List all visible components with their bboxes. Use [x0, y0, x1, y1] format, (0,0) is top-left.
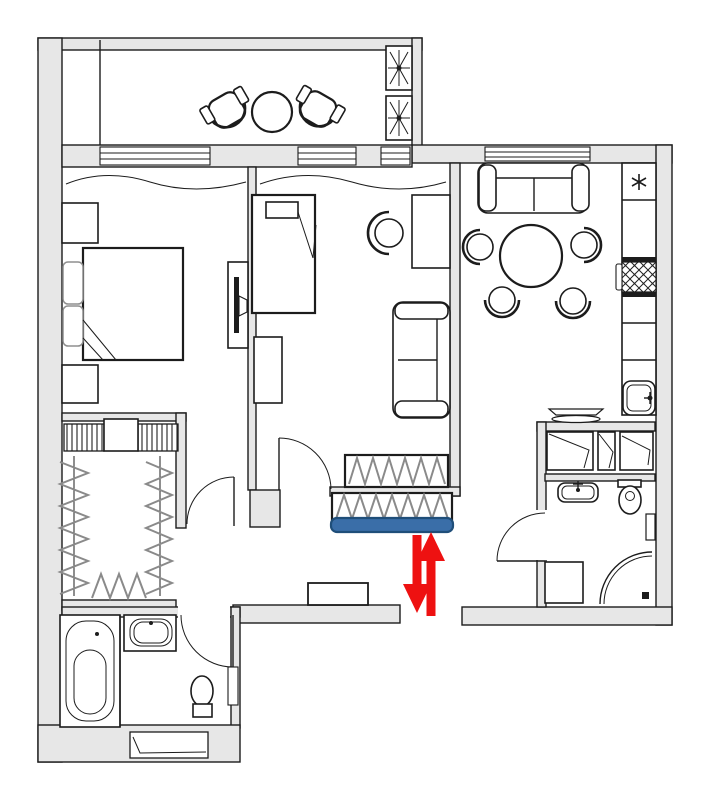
nightstand-icon: [62, 365, 98, 403]
cabinet-icon: [254, 337, 282, 403]
wall-top: [38, 38, 422, 50]
wall-block-hall: [250, 490, 280, 527]
floor-plan-page: [0, 0, 701, 800]
bathtub-icon: [60, 615, 120, 727]
window-bedroom-2: [298, 147, 356, 165]
nightstand-icon: [62, 203, 98, 243]
room-bedroom-2: [252, 175, 450, 487]
chair-icon: [556, 288, 590, 318]
hanging-rail-icon: [60, 456, 88, 596]
curtain-icon: [260, 175, 446, 189]
armchair-icon: [199, 85, 257, 137]
wall-right: [656, 145, 672, 625]
washing-machine-icon: [545, 562, 583, 603]
window-kitchen: [485, 147, 590, 161]
chair-icon: [485, 287, 519, 317]
door-bathroom-left: [181, 615, 233, 667]
toilet-icon: [191, 676, 213, 717]
room-walk-in-closet: [60, 419, 178, 598]
shelf-unit-icon: [64, 424, 104, 451]
armchair-icon: [289, 84, 347, 136]
single-bed-icon: [252, 195, 316, 313]
wall-bedroom2-kitchen: [450, 163, 460, 496]
duct-box: [228, 667, 238, 705]
shelf-unit-icon: [138, 424, 178, 451]
cabinet-icon: [547, 432, 593, 470]
round-table-icon: [252, 92, 292, 132]
hanging-rail-icon: [92, 574, 146, 598]
room-bedroom-1: [62, 175, 248, 403]
kitchen-counter: [616, 163, 656, 415]
wall-left: [38, 38, 62, 762]
stove-icon: [616, 257, 656, 297]
wall-balcony-right: [412, 38, 422, 147]
wardrobe-hangers-icon: [345, 455, 448, 487]
desk-icon: [412, 195, 450, 268]
kitchen-sink-icon: [623, 381, 655, 415]
wall-shelf-icon: [549, 409, 603, 423]
plant-icon: [386, 96, 412, 140]
wall-bottom-right: [462, 607, 672, 625]
window-bedroom-2b: [381, 147, 410, 165]
wall-tv-icon: [228, 262, 248, 348]
highlight-bar: [331, 518, 453, 532]
double-bed-icon: [63, 248, 183, 360]
door-bedroom-1: [187, 477, 234, 526]
bathroom-sink-icon: [124, 615, 176, 651]
hanging-rail-icon: [146, 456, 172, 596]
entry-cabinet-icon: [308, 583, 368, 605]
closet-pier: [104, 419, 138, 451]
walls: [38, 38, 672, 762]
doormat-icon: [130, 732, 208, 758]
room-kitchen: [463, 163, 656, 423]
chair-icon: [571, 228, 601, 262]
curtain-icon: [66, 175, 246, 189]
window-bedroom-1: [100, 147, 210, 165]
desk-chair-icon: [368, 212, 403, 254]
toilet-icon: [618, 480, 641, 514]
sofa-icon: [478, 163, 589, 213]
chair-icon: [463, 230, 493, 264]
wall-bottom-left: [233, 605, 400, 623]
bathroom-sink-icon: [558, 481, 598, 502]
room-bathroom-right: [497, 432, 655, 604]
door-bedroom-2: [279, 438, 331, 490]
opening-bath-left-door: [178, 606, 230, 618]
plant-icon: [386, 46, 412, 90]
corner-shower-icon: [600, 552, 652, 604]
wardrobe-hangers-highlighted: [332, 493, 452, 521]
cabinet-icon: [598, 432, 615, 470]
radiator-icon: [646, 514, 655, 540]
wall-bath-right-top: [537, 422, 655, 431]
sofa-icon: [393, 302, 450, 418]
dining-table-icon: [500, 225, 562, 287]
floor-plan-drawing: [0, 0, 701, 800]
room-balcony: [199, 46, 412, 140]
cabinet-icon: [620, 432, 653, 470]
opening-bath-right-door: [536, 510, 547, 560]
double-arrow-annotation: [403, 532, 445, 616]
